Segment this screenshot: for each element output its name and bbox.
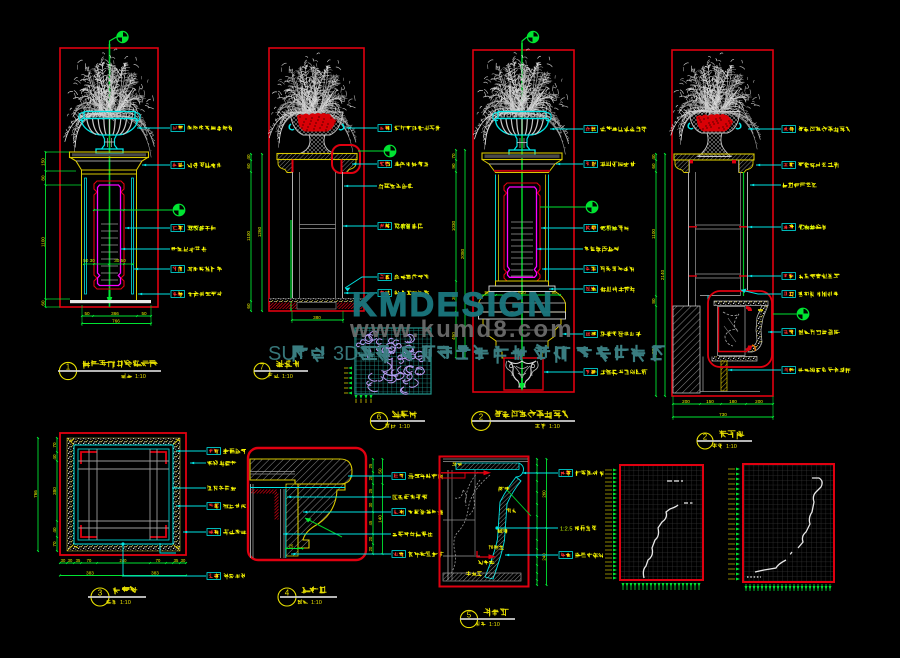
svg-text:30: 30 — [181, 558, 186, 563]
svg-text:30: 30 — [61, 558, 66, 563]
svg-text:60: 60 — [246, 163, 251, 169]
svg-text:1:10: 1:10 — [549, 424, 560, 430]
svg-text:40: 40 — [651, 154, 656, 160]
svg-text:260: 260 — [542, 490, 547, 498]
svg-text:1100: 1100 — [651, 229, 656, 239]
svg-text:70: 70 — [87, 558, 92, 563]
svg-text:2080: 2080 — [460, 248, 465, 259]
svg-text:70: 70 — [52, 541, 57, 547]
svg-text:200: 200 — [682, 399, 690, 404]
svg-text:30 50: 30 50 — [114, 258, 126, 263]
svg-text:1:10: 1:10 — [282, 374, 293, 380]
svg-text:50: 50 — [141, 311, 147, 316]
svg-text:766: 766 — [112, 318, 120, 323]
svg-text:383: 383 — [151, 570, 159, 575]
svg-text:1:10: 1:10 — [135, 374, 146, 380]
svg-text:70: 70 — [156, 558, 161, 563]
svg-text:40: 40 — [52, 527, 57, 533]
svg-text:380: 380 — [313, 315, 321, 320]
svg-text:380: 380 — [52, 487, 57, 495]
svg-text:www.kumd8.com: www.kumd8.com — [349, 316, 574, 343]
svg-text:Coral: Coral — [189, 227, 203, 233]
svg-text:150: 150 — [706, 399, 714, 404]
svg-text:SU: SU — [268, 343, 296, 365]
svg-text:1:10: 1:10 — [489, 622, 500, 628]
svg-text:1100: 1100 — [246, 231, 251, 241]
svg-text:25: 25 — [368, 463, 373, 468]
svg-text:200: 200 — [755, 399, 763, 404]
svg-text:1:10: 1:10 — [120, 600, 131, 606]
svg-text:730: 730 — [719, 412, 727, 417]
svg-text:70: 70 — [52, 442, 57, 448]
svg-text:20: 20 — [368, 546, 373, 551]
svg-text:766: 766 — [33, 490, 38, 498]
svg-text:40: 40 — [246, 154, 251, 160]
svg-text:35: 35 — [76, 558, 81, 563]
svg-text:Coral: Coral — [396, 225, 410, 231]
svg-text:180: 180 — [729, 399, 737, 404]
svg-text:90: 90 — [451, 163, 456, 169]
svg-text:1260: 1260 — [257, 226, 262, 237]
svg-text:1:10: 1:10 — [399, 424, 410, 430]
svg-text:366: 366 — [111, 311, 119, 316]
svg-text:Coral: Coral — [800, 226, 814, 232]
svg-text:25: 25 — [368, 488, 373, 493]
svg-text:40: 40 — [52, 454, 57, 460]
svg-text:30: 30 — [68, 558, 73, 563]
svg-text:60: 60 — [651, 163, 656, 169]
svg-text:80: 80 — [651, 298, 656, 304]
svg-text:150: 150 — [41, 158, 46, 166]
svg-text:60: 60 — [41, 300, 46, 306]
svg-text:60: 60 — [246, 303, 251, 309]
svg-text:Coral: Coral — [602, 227, 616, 233]
svg-text:80: 80 — [41, 175, 46, 181]
svg-text:50 30: 50 30 — [83, 258, 95, 263]
svg-text:240: 240 — [542, 553, 547, 561]
svg-text:1030: 1030 — [451, 220, 456, 231]
svg-text:2140: 2140 — [660, 269, 665, 280]
svg-text:3D: 3D — [333, 343, 359, 365]
svg-text:35: 35 — [174, 558, 179, 563]
svg-text:25: 25 — [289, 543, 294, 548]
svg-text:1100: 1100 — [41, 237, 46, 247]
svg-text:45: 45 — [368, 520, 373, 525]
svg-text:383: 383 — [86, 570, 94, 575]
svg-text:20: 20 — [368, 536, 373, 541]
svg-text:1:10: 1:10 — [311, 600, 322, 606]
svg-text:50: 50 — [378, 468, 383, 474]
svg-text:140: 140 — [378, 515, 383, 523]
svg-text:50: 50 — [84, 311, 90, 316]
svg-text:1:2.5: 1:2.5 — [560, 527, 572, 533]
svg-text:70: 70 — [451, 153, 456, 159]
svg-text:30: 30 — [368, 502, 373, 507]
svg-text:1:10: 1:10 — [726, 444, 737, 450]
